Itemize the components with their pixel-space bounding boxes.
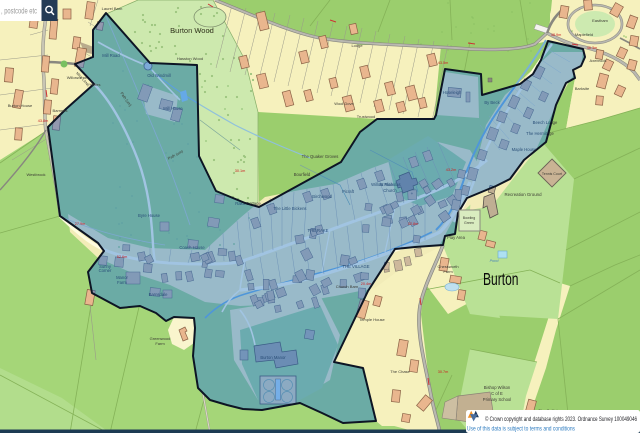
- svg-text:43.5m: 43.5m: [438, 61, 449, 65]
- svg-text:, postcode etc: , postcode etc: [1, 6, 38, 16]
- svg-text:Use of this data is subject to: Use of this data is subject to terms and…: [467, 426, 575, 433]
- svg-text:Lodge: Lodge: [351, 43, 363, 48]
- svg-text:The Quaker Groves: The Quaker Groves: [302, 154, 339, 159]
- svg-text:48.9m: 48.9m: [551, 33, 562, 37]
- svg-text:Pond: Pond: [490, 259, 500, 263]
- svg-text:43.8m: 43.8m: [38, 119, 49, 123]
- svg-text:Barnetts: Barnetts: [53, 108, 68, 113]
- svg-text:43.2m: 43.2m: [446, 168, 457, 172]
- svg-text:© Crown copyright and database: © Crown copyright and database rights 20…: [485, 415, 637, 423]
- svg-text:32.8m: 32.8m: [408, 222, 419, 226]
- svg-text:Play Area: Play Area: [447, 235, 466, 240]
- svg-text:Trustwood: Trustwood: [357, 114, 376, 119]
- svg-text:Bishop Wilson: Bishop Wilson: [484, 385, 511, 390]
- svg-text:Maplefield: Maplefield: [575, 32, 593, 37]
- svg-text:Green: Green: [464, 221, 474, 225]
- svg-text:Eastham: Eastham: [592, 18, 608, 23]
- svg-text:Tennis Court: Tennis Court: [542, 172, 562, 176]
- svg-text:27.9m: 27.9m: [75, 222, 86, 226]
- svg-text:Burton: Burton: [483, 269, 519, 289]
- svg-text:Burton House: Burton House: [8, 103, 33, 108]
- svg-text:Barksite: Barksite: [575, 86, 590, 91]
- svg-text:Temple House: Temple House: [359, 317, 385, 322]
- svg-text:Bowling: Bowling: [463, 216, 476, 220]
- svg-text:Primary School: Primary School: [483, 397, 511, 402]
- svg-text:The Chase: The Chase: [390, 369, 410, 374]
- svg-text:C of E: C of E: [491, 391, 503, 396]
- svg-text:30.1m: 30.1m: [235, 169, 246, 173]
- svg-text:Bourfield: Bourfield: [294, 172, 311, 177]
- svg-text:46.3m: 46.3m: [587, 46, 598, 50]
- svg-text:Farm: Farm: [443, 269, 453, 274]
- svg-text:Westbrook: Westbrook: [26, 172, 45, 177]
- svg-text:Recreation Ground: Recreation Ground: [504, 192, 542, 197]
- svg-text:Hasston Wood: Hasston Wood: [177, 56, 203, 61]
- svg-text:Burton Wood: Burton Wood: [170, 26, 214, 35]
- svg-text:Church Barn: Church Barn: [336, 284, 358, 289]
- svg-text:Laurel Barn: Laurel Barn: [102, 6, 123, 11]
- svg-text:Axebrook: Axebrook: [590, 58, 607, 63]
- svg-text:30.7m: 30.7m: [438, 370, 449, 374]
- svg-text:20.4m: 20.4m: [361, 282, 372, 286]
- svg-text:52.6m: 52.6m: [117, 255, 128, 259]
- svg-text:Wool Dove: Wool Dove: [334, 101, 354, 106]
- svg-text:Yeffes: Yeffes: [90, 82, 101, 87]
- svg-text:Farm: Farm: [155, 341, 165, 346]
